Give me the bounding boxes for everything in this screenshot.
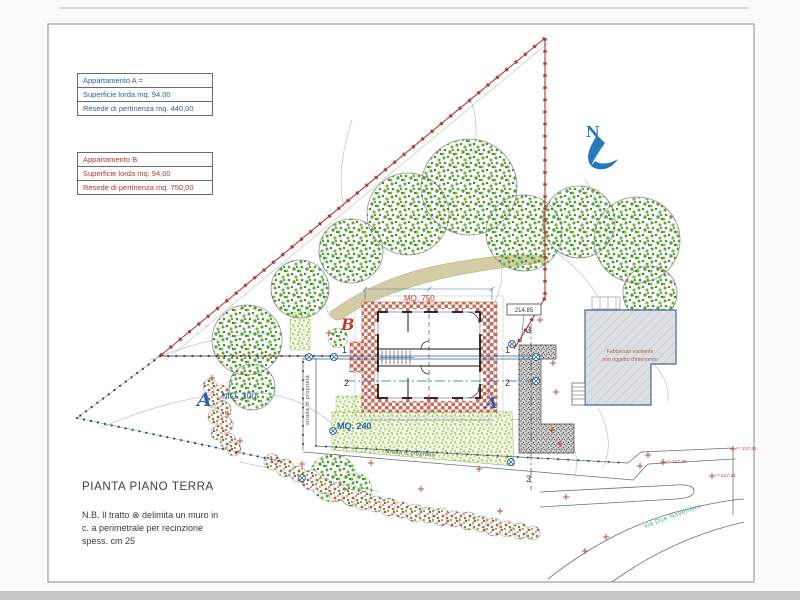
label-unit-b: B xyxy=(340,315,355,334)
label-mq200: MQ. 200 xyxy=(222,391,257,401)
wall-marker-symbol xyxy=(306,354,313,361)
legend-a-row1: Superficie lorda mq. 94,00 xyxy=(77,87,213,102)
axis3-top: 3 xyxy=(526,325,531,335)
shrub xyxy=(227,442,241,456)
wall-marker-symbol xyxy=(330,428,337,435)
label-area-a: A xyxy=(195,389,212,411)
site-plan-page: Fabbricato esistente non oggetto d'inter… xyxy=(0,0,800,600)
legend-a-title: Appartamento A = xyxy=(77,73,213,88)
legend-b-title: Appartamento B xyxy=(77,152,213,167)
shrub xyxy=(512,523,528,539)
axis1-right: 1 xyxy=(505,345,510,355)
legend-apartment-a: Appartamento A = Superficie lorda mq. 94… xyxy=(77,74,213,116)
existing-building-caption-1: Fabbricato esistente xyxy=(607,349,654,355)
wall-marker-symbol xyxy=(299,475,306,482)
survey-elevation-label: 217.41 xyxy=(742,446,757,452)
wall-marker-symbol xyxy=(331,354,338,361)
survey-elevation-label: 217.20 xyxy=(672,459,687,465)
private-road-label-vertical: strada di proprietà xyxy=(305,374,311,425)
external-stairs xyxy=(572,383,585,405)
legend-a-row2: Resede di pertinenza mq. 440,00 xyxy=(77,101,213,116)
axis2-left: 2 xyxy=(344,378,349,388)
title-block: PIANTA PIANO TERRA N.B. Il tratto ⊗ deli… xyxy=(82,481,218,548)
wall-marker-symbol xyxy=(533,378,540,385)
wall-marker-symbol xyxy=(508,459,515,466)
legend-b-row1: Superficie lorda mq. 94,00 xyxy=(77,166,213,181)
existing-building-caption-2: non oggetto d'intervento xyxy=(602,357,658,363)
note-line-1: N.B. Il tratto ⊗ delimita un muro in xyxy=(82,509,218,522)
label-unit-a: A xyxy=(483,393,497,412)
drawing-title: PIANTA PIANO TERRA xyxy=(82,481,218,493)
axis1-left: 1 xyxy=(342,345,347,355)
new-building xyxy=(350,296,503,417)
shrub xyxy=(526,526,540,540)
tree xyxy=(271,260,329,318)
label-mq240: MQ. 240 xyxy=(337,421,372,431)
axis2-right: 2 xyxy=(505,378,510,388)
note-line-3: spess. cm 25 xyxy=(82,535,218,548)
tree xyxy=(229,364,275,410)
wall-marker-symbol xyxy=(533,354,540,361)
elevation-box: 214.85 xyxy=(507,304,541,315)
label-mq750: MQ. 750 xyxy=(404,294,435,303)
note-line-2: c. a perimetrale per recinzione xyxy=(82,522,218,535)
legend-b-row2: Resede di pertinenza mq. 750,00 xyxy=(77,180,213,195)
survey-elevation-label: 217.31 xyxy=(721,473,736,479)
elevation-value: 214.85 xyxy=(515,308,534,314)
drawing-note: N.B. Il tratto ⊗ delimita un muro in c. … xyxy=(82,509,218,548)
legend-apartment-b: Appartamento B Superficie lorda mq. 94,0… xyxy=(77,153,213,195)
axis3-bottom: 3 xyxy=(526,474,531,484)
